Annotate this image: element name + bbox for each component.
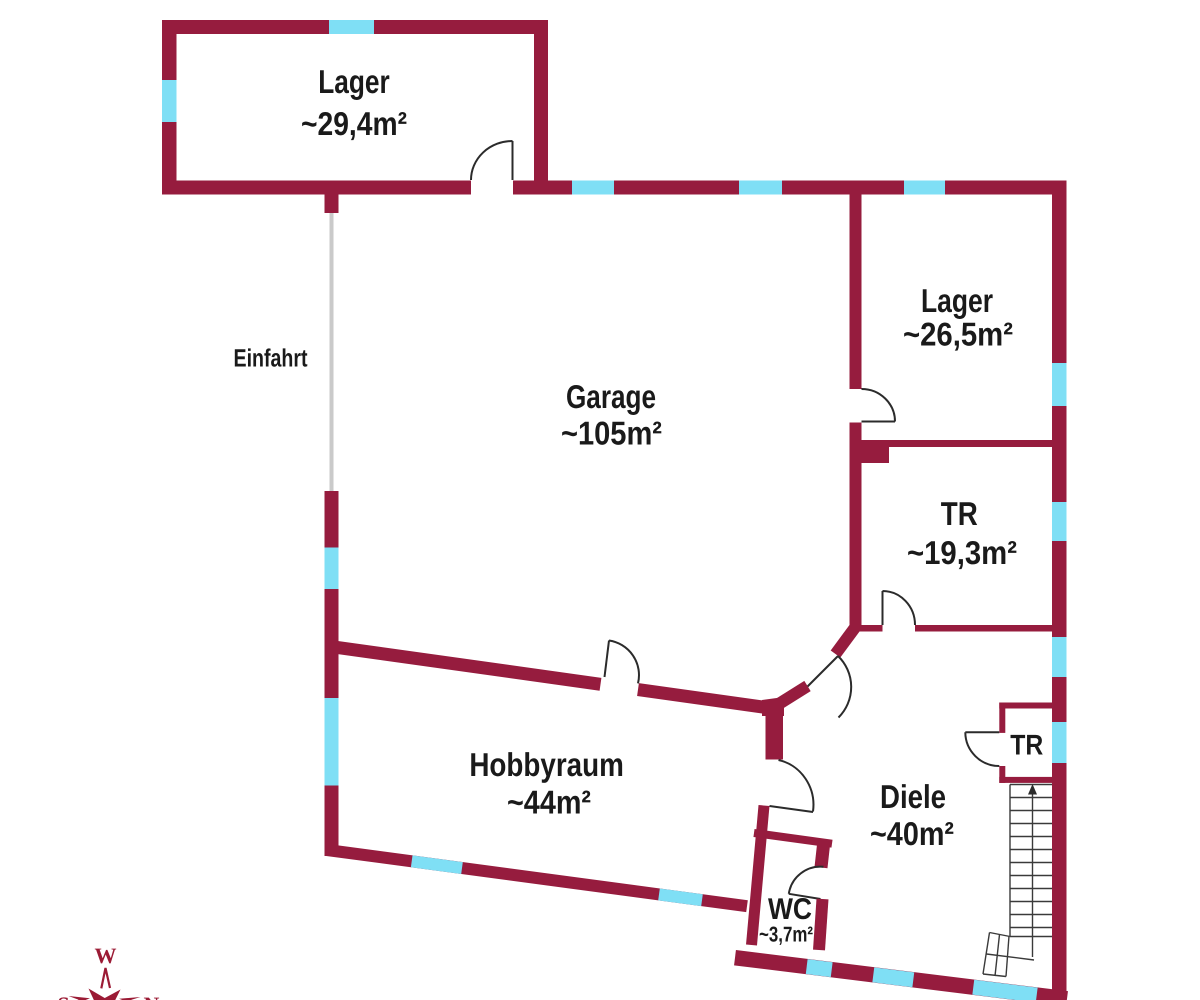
svg-text:Lager: Lager <box>921 282 993 319</box>
svg-text:WC: WC <box>768 893 812 926</box>
svg-text:~26,5m²: ~26,5m² <box>903 316 1013 353</box>
svg-text:Einfahrt: Einfahrt <box>234 345 309 373</box>
svg-text:Lager: Lager <box>318 63 390 100</box>
svg-text:~19,3m²: ~19,3m² <box>907 534 1017 571</box>
svg-text:Hobbyraum: Hobbyraum <box>469 746 624 783</box>
svg-text:~3,7m²: ~3,7m² <box>759 923 813 947</box>
svg-text:Garage: Garage <box>566 378 656 415</box>
svg-text:TR: TR <box>1010 730 1043 762</box>
svg-text:N: N <box>144 992 160 1000</box>
svg-text:~105m²: ~105m² <box>561 415 662 452</box>
svg-text:Diele: Diele <box>880 778 946 815</box>
svg-text:~40m²: ~40m² <box>870 815 954 852</box>
svg-text:W: W <box>95 943 117 968</box>
svg-text:S: S <box>57 992 69 1000</box>
svg-text:~44m²: ~44m² <box>507 784 591 821</box>
svg-text:TR: TR <box>941 495 978 532</box>
svg-text:~29,4m²: ~29,4m² <box>301 105 407 142</box>
